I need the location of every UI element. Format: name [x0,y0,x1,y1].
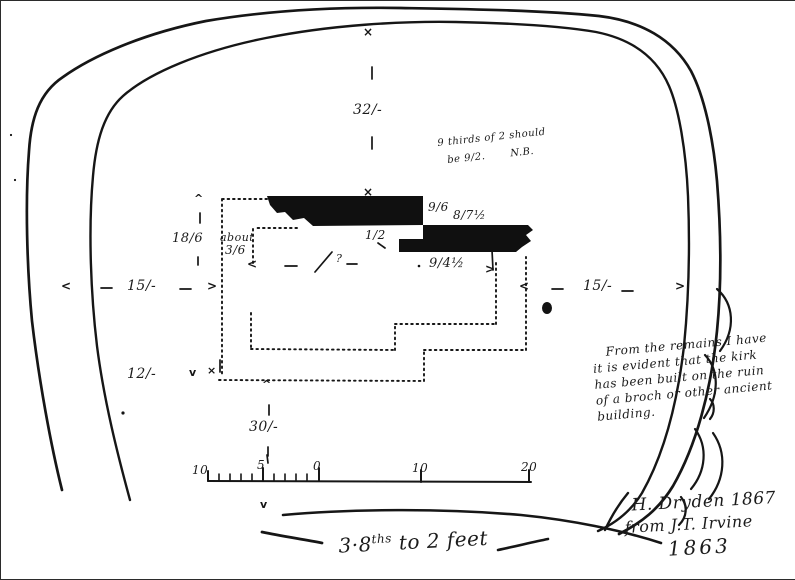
dimension-about-label: about [220,232,254,243]
kirk-standing-wall [267,196,533,252]
arrow-cross-top: × [363,26,373,38]
dimension-top: 32/- [353,103,382,117]
dimension-west-wall: 18/6 [172,232,203,245]
arrow-right-west: > [207,280,217,292]
measure-dashes [101,67,633,463]
arrow-cross-building-top: × [363,186,373,198]
arrow-left-west: < [61,280,71,292]
scale-label-10-left: 10 [192,464,208,476]
scale-label-10-right: 10 [412,462,428,474]
scale-caption-rest: to 2 feet [391,526,488,555]
enclosure-inner-line [90,22,688,531]
scale-caption-base: 3·8 [338,532,373,558]
dimension-lower-left: 12/- [127,367,156,381]
arrow-up-west-wall: ^ [194,193,203,204]
enclosure-bottom-stroke-right [498,539,548,550]
arrow-right-east: > [675,280,685,292]
cross-lower-left: × [207,365,216,376]
dimension-query: ? [336,253,342,264]
remains-note: From the remains I have it is evident th… [591,330,774,425]
arrow-down-lower-left: v [189,367,196,378]
scale-label-5: 5 [257,459,265,471]
dimension-about-value: 3/6 [225,244,246,256]
enclosure-outer-line [27,8,721,534]
arrow-up-bottom-line: ^ [262,379,271,390]
dimension-bottom: 30/- [249,420,278,434]
survey-sketch-plan: 32/- 15/- 15/- 12/- 30/- 18/6 about 3/6 … [0,0,795,580]
dimension-north-a: 9/6 [428,201,449,213]
dimension-north-b: 8/7½ [453,209,486,221]
scale-label-20: 20 [521,461,537,473]
arrow-left-east: < [519,280,529,292]
scale-label-0: 0 [313,460,321,472]
arrow-down-enclosure-bottom: v [260,499,267,510]
dimension-left: 15/- [127,279,156,293]
arrow-right-interior: > [485,263,495,275]
dimension-interior: 9/4½ [429,257,465,270]
scale-caption-sup: ths [371,531,392,546]
memo-nb: N.B. [510,146,535,159]
signature: H. Dryden 1867 from J.T. Irvine 1863 [623,487,779,563]
enclosure-bottom-stroke-left [262,532,322,543]
dimension-right: 15/- [583,279,612,293]
arrow-left-interior: < [247,258,257,270]
dimension-step: 1/2 [365,229,386,241]
